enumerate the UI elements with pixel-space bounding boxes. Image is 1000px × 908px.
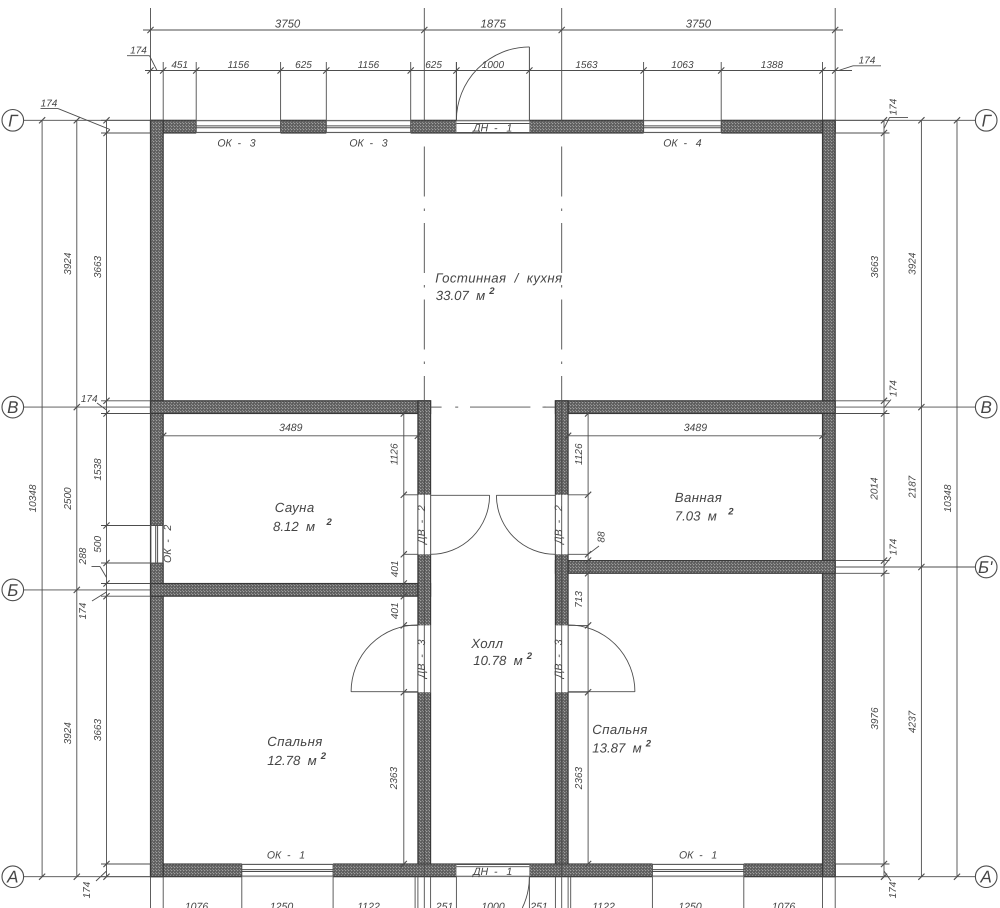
svg-text:174: 174: [888, 881, 899, 898]
svg-text:Спальня: Спальня: [592, 722, 647, 737]
svg-text:ОК - 3: ОК - 3: [349, 138, 387, 150]
svg-text:2014: 2014: [870, 477, 881, 501]
svg-text:ДВ - 3: ДВ - 3: [416, 639, 428, 679]
svg-text:1250: 1250: [270, 901, 294, 908]
svg-text:Сауна: Сауна: [275, 500, 315, 515]
svg-text:174: 174: [130, 46, 147, 57]
svg-text:1563: 1563: [575, 60, 598, 71]
svg-text:10348: 10348: [28, 484, 39, 512]
svg-text:ОК - 2: ОК - 2: [162, 525, 174, 563]
svg-text:2500: 2500: [63, 487, 74, 511]
svg-text:1000: 1000: [481, 901, 505, 908]
svg-text:ОК - 3: ОК - 3: [217, 138, 255, 150]
svg-text:251: 251: [529, 901, 548, 908]
svg-text:174: 174: [82, 881, 93, 898]
svg-text:174: 174: [859, 56, 876, 67]
svg-text:174: 174: [888, 98, 899, 115]
svg-text:3924: 3924: [63, 252, 74, 275]
svg-text:1000: 1000: [482, 60, 505, 71]
svg-text:174: 174: [889, 380, 900, 397]
svg-text:2: 2: [645, 738, 652, 749]
svg-text:88: 88: [597, 531, 608, 543]
svg-text:А: А: [980, 868, 992, 887]
svg-text:4237: 4237: [908, 710, 919, 733]
svg-text:1126: 1126: [390, 443, 401, 465]
svg-text:10348: 10348: [943, 484, 954, 512]
svg-text:3924: 3924: [908, 252, 919, 275]
svg-text:Спальня: Спальня: [267, 734, 322, 749]
svg-text:1156: 1156: [358, 60, 380, 71]
svg-text:1875: 1875: [481, 18, 507, 30]
svg-text:3489: 3489: [279, 422, 303, 434]
svg-text:1076: 1076: [772, 901, 796, 908]
svg-text:Б': Б': [978, 558, 993, 577]
svg-text:13.87 м: 13.87 м: [592, 740, 641, 755]
svg-text:174: 174: [889, 538, 900, 555]
svg-text:451: 451: [171, 60, 188, 71]
svg-text:2: 2: [320, 751, 327, 762]
svg-text:А: А: [6, 868, 18, 887]
svg-text:В: В: [981, 398, 992, 417]
svg-text:288: 288: [78, 547, 89, 565]
svg-text:1538: 1538: [93, 458, 104, 481]
svg-text:ДВ - 2: ДВ - 2: [416, 505, 428, 545]
svg-text:1076: 1076: [185, 901, 209, 908]
svg-text:ОК - 4: ОК - 4: [663, 138, 701, 150]
svg-text:Холл: Холл: [470, 636, 503, 651]
svg-text:1122: 1122: [357, 901, 380, 908]
svg-text:500: 500: [93, 536, 104, 553]
svg-text:ДН - 1: ДН - 1: [472, 122, 512, 134]
svg-text:625: 625: [295, 60, 312, 71]
svg-text:2187: 2187: [908, 475, 919, 499]
svg-text:401: 401: [390, 602, 401, 619]
svg-text:174: 174: [81, 394, 98, 405]
svg-text:3663: 3663: [870, 255, 881, 278]
svg-text:Ванная: Ванная: [675, 490, 722, 505]
svg-text:174: 174: [41, 99, 58, 110]
svg-text:1063: 1063: [671, 60, 694, 71]
svg-text:3663: 3663: [93, 255, 104, 278]
svg-text:В: В: [7, 398, 18, 417]
svg-text:2: 2: [326, 517, 333, 528]
svg-text:10.78 м: 10.78 м: [473, 653, 522, 668]
svg-text:2363: 2363: [389, 767, 400, 791]
svg-text:2363: 2363: [574, 767, 585, 791]
svg-text:ОК - 1: ОК - 1: [679, 849, 717, 861]
svg-text:12.78 м: 12.78 м: [267, 753, 316, 768]
svg-text:Б: Б: [7, 581, 18, 600]
svg-text:ДН - 1: ДН - 1: [472, 866, 512, 878]
svg-text:ОК - 1: ОК - 1: [267, 849, 305, 861]
svg-text:251: 251: [435, 901, 454, 908]
svg-text:3489: 3489: [684, 422, 708, 434]
svg-text:7.03 м: 7.03 м: [675, 508, 717, 523]
svg-text:3924: 3924: [63, 722, 74, 745]
svg-text:ДВ - 3: ДВ - 3: [553, 639, 565, 679]
svg-text:ДВ - 2: ДВ - 2: [553, 505, 565, 545]
svg-text:3750: 3750: [275, 18, 301, 30]
svg-text:174: 174: [78, 602, 89, 619]
svg-text:1388: 1388: [761, 60, 784, 71]
svg-text:2: 2: [526, 651, 533, 662]
svg-text:2: 2: [488, 286, 495, 297]
svg-text:2: 2: [727, 506, 734, 517]
svg-text:713: 713: [574, 591, 585, 608]
svg-text:8.12 м: 8.12 м: [273, 519, 315, 534]
svg-text:3750: 3750: [686, 18, 712, 30]
svg-text:3663: 3663: [93, 719, 104, 742]
svg-text:1156: 1156: [228, 60, 250, 71]
svg-text:401: 401: [390, 561, 401, 578]
svg-text:625: 625: [425, 60, 442, 71]
svg-text:Гостинная / кухня: Гостинная / кухня: [435, 271, 562, 286]
svg-text:3976: 3976: [870, 707, 881, 730]
svg-text:33.07 м: 33.07 м: [436, 288, 485, 303]
svg-text:1126: 1126: [574, 443, 585, 465]
svg-text:1122: 1122: [592, 901, 615, 908]
svg-text:1250: 1250: [678, 901, 702, 908]
